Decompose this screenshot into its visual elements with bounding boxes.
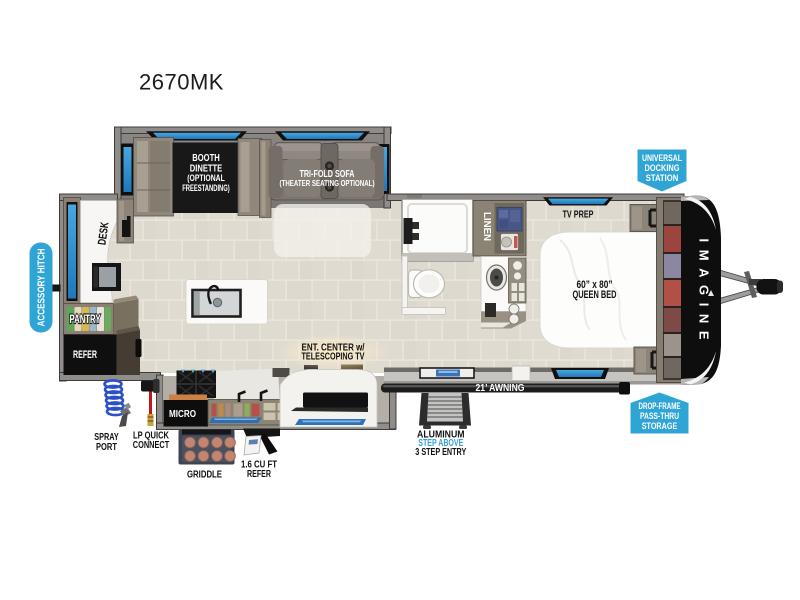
svg-text:GRIDDLE: GRIDDLE	[187, 469, 222, 481]
svg-text:QUEEN BED: QUEEN BED	[573, 289, 617, 301]
svg-text:ACCESSORY HITCH: ACCESSORY HITCH	[36, 249, 48, 327]
svg-text:PORT: PORT	[96, 442, 117, 453]
svg-text:2670MK: 2670MK	[139, 70, 224, 95]
svg-text:FREESTANDING): FREESTANDING)	[182, 183, 230, 193]
svg-text:REFER: REFER	[73, 349, 97, 361]
svg-text:TELESCOPING TV: TELESCOPING TV	[302, 352, 365, 363]
svg-text:STATION: STATION	[646, 173, 679, 184]
svg-text:(OPTIONAL: (OPTIONAL	[187, 173, 225, 183]
svg-text:PANTRY: PANTRY	[70, 312, 101, 326]
svg-text:STORAGE: STORAGE	[642, 421, 678, 432]
svg-text:LINEN: LINEN	[481, 212, 493, 241]
svg-text:MICRO: MICRO	[169, 409, 196, 420]
svg-text:CONNECT: CONNECT	[133, 440, 170, 451]
svg-text:BOOTH: BOOTH	[192, 153, 220, 164]
svg-text:21’ AWNING: 21’ AWNING	[476, 383, 525, 394]
svg-text:REFER: REFER	[247, 468, 271, 480]
svg-text:3 STEP ENTRY: 3 STEP ENTRY	[415, 446, 466, 458]
svg-text:TV PREP: TV PREP	[563, 208, 594, 220]
svg-text:(THEATER SEATING OPTIONAL): (THEATER SEATING OPTIONAL)	[280, 178, 375, 188]
